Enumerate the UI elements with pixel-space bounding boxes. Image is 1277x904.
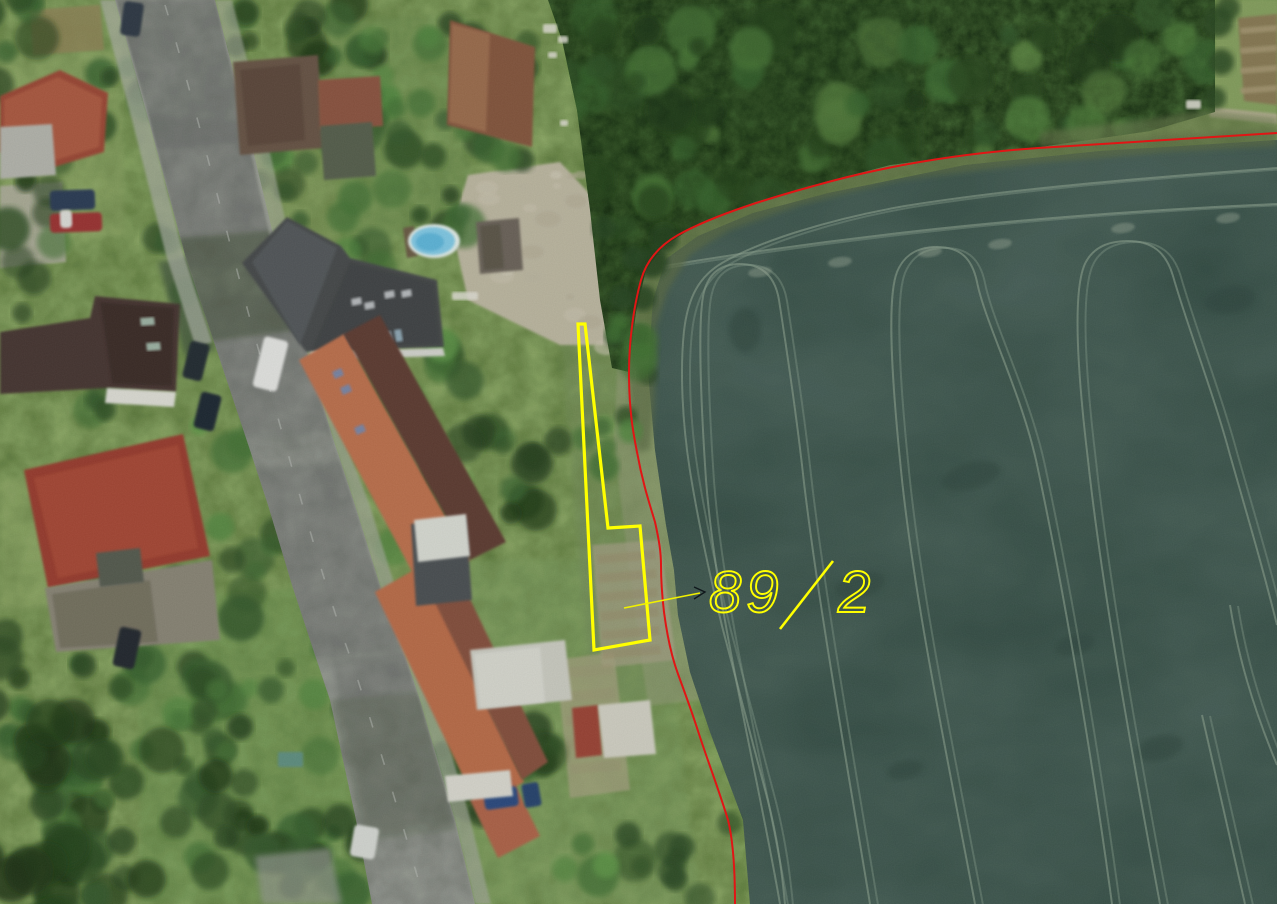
svg-text:2: 2 [837,560,870,625]
svg-text:89: 89 [709,560,784,625]
